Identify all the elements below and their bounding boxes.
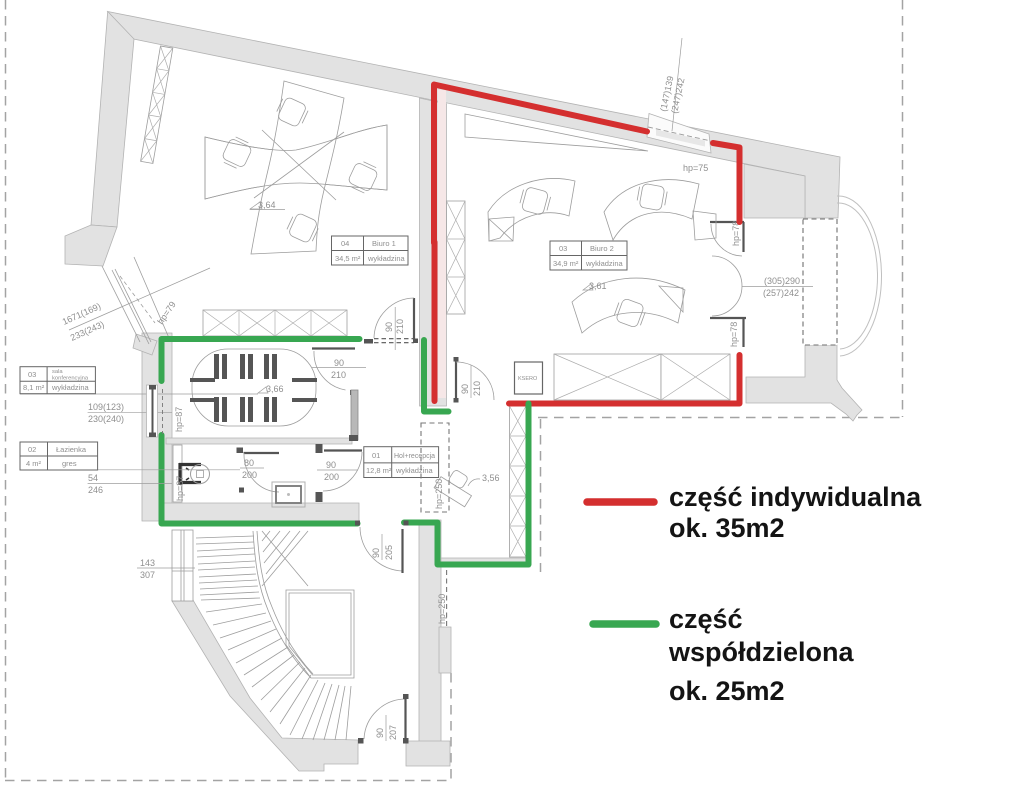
svg-text:wykładzina: wykładzina — [395, 466, 434, 475]
svg-text:hp=75: hp=75 — [683, 163, 708, 173]
svg-text:wykładzina: wykładzina — [585, 259, 624, 268]
svg-text:03: 03 — [559, 244, 567, 253]
svg-text:hp=250: hp=250 — [434, 479, 444, 509]
svg-text:34,5 m²: 34,5 m² — [335, 254, 361, 263]
svg-text:8,1 m²: 8,1 m² — [23, 383, 45, 392]
svg-text:ok. 25m2: ok. 25m2 — [669, 676, 785, 706]
svg-text:04: 04 — [341, 239, 349, 248]
svg-text:hp=250: hp=250 — [437, 594, 447, 624]
svg-text:4 m²: 4 m² — [26, 459, 42, 468]
svg-text:90: 90 — [326, 460, 336, 470]
svg-text:12,8 m²: 12,8 m² — [366, 466, 392, 475]
svg-text:część: część — [669, 604, 743, 634]
svg-text:hp=78: hp=78 — [729, 322, 739, 347]
svg-text:sala: sala — [52, 369, 63, 375]
svg-text:54: 54 — [88, 473, 98, 483]
svg-text:143: 143 — [140, 558, 155, 568]
svg-text:część indywidualna: część indywidualna — [669, 482, 922, 512]
svg-text:wykładzina: wykładzina — [51, 383, 90, 392]
svg-text:(305)290: (305)290 — [764, 276, 800, 286]
svg-text:200: 200 — [324, 472, 339, 482]
svg-text:02: 02 — [28, 445, 36, 454]
svg-text:konferencyjna: konferencyjna — [52, 376, 89, 382]
svg-text:90: 90 — [384, 322, 394, 332]
svg-text:Biuro 1: Biuro 1 — [372, 239, 396, 248]
svg-text:wykładzina: wykładzina — [367, 254, 406, 263]
svg-text:03: 03 — [28, 370, 36, 379]
svg-text:hp=87: hp=87 — [175, 476, 185, 501]
svg-text:3,56: 3,56 — [482, 473, 500, 483]
svg-text:gres: gres — [62, 459, 77, 468]
svg-text:207: 207 — [388, 725, 398, 740]
svg-text:210: 210 — [472, 381, 482, 396]
svg-text:hp=87: hp=87 — [174, 407, 184, 432]
svg-text:205: 205 — [384, 545, 394, 560]
svg-text:(257)242: (257)242 — [763, 288, 799, 298]
svg-text:210: 210 — [331, 370, 346, 380]
svg-text:Biuro 2: Biuro 2 — [590, 244, 614, 253]
svg-text:230(240): 230(240) — [88, 414, 124, 424]
svg-text:90: 90 — [460, 384, 470, 394]
svg-text:90: 90 — [375, 728, 385, 738]
svg-text:3,66: 3,66 — [266, 384, 284, 394]
svg-text:współdzielona: współdzielona — [668, 637, 855, 667]
svg-text:Hol+recepcja: Hol+recepcja — [394, 453, 435, 460]
svg-text:KSERO: KSERO — [518, 376, 538, 382]
svg-text:80: 80 — [244, 458, 254, 468]
svg-text:90: 90 — [371, 548, 381, 558]
svg-text:01: 01 — [372, 451, 380, 460]
svg-text:ok. 35m2: ok. 35m2 — [669, 513, 785, 543]
svg-text:307: 307 — [140, 570, 155, 580]
svg-text:210: 210 — [395, 319, 405, 334]
svg-text:109(123): 109(123) — [88, 402, 124, 412]
svg-text:90: 90 — [334, 358, 344, 368]
svg-text:246: 246 — [88, 485, 103, 495]
svg-text:200: 200 — [242, 470, 257, 480]
svg-text:34,9 m²: 34,9 m² — [553, 259, 579, 268]
svg-text:Łazienka: Łazienka — [56, 445, 87, 454]
